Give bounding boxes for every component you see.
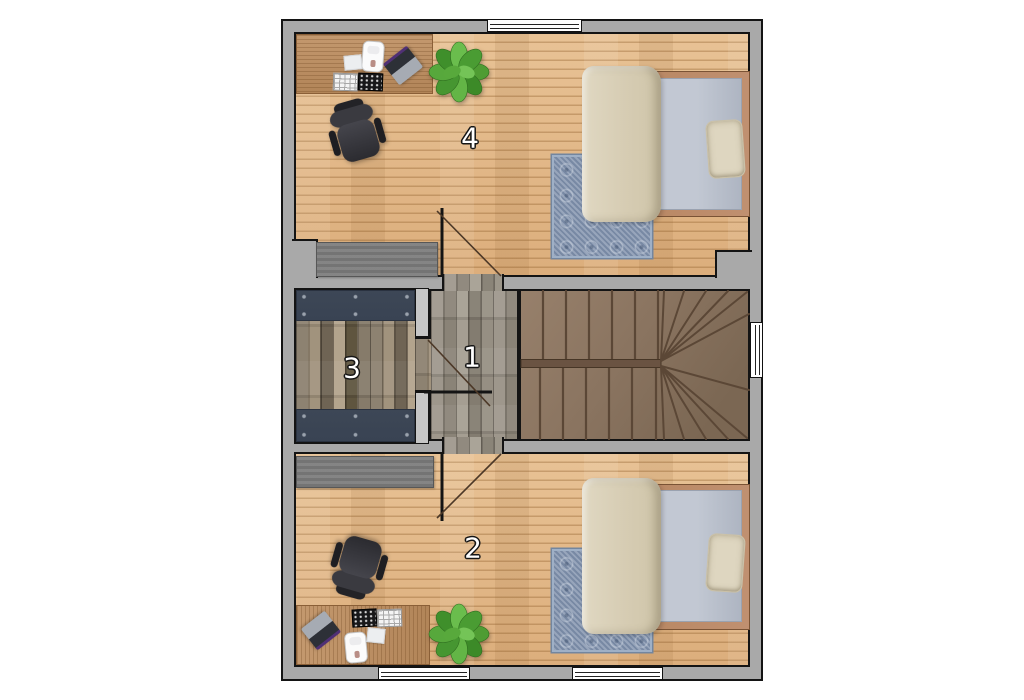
doorway-bedroom-top: [442, 274, 504, 291]
doorway-bedroom-bottom: [442, 437, 504, 454]
window-top: [487, 19, 582, 32]
room-label-bedroom-bottom: 2: [464, 532, 482, 565]
window-bottom-right: [572, 667, 663, 680]
notepad-icon-bottom: [366, 627, 385, 644]
room-label-hallway: 1: [463, 341, 481, 374]
wall-jamb-storage-upper: [415, 288, 429, 337]
dresser-bottom: [296, 456, 434, 488]
window-right: [750, 322, 763, 378]
console-device-icon-top: [361, 40, 385, 72]
wall-notch-top-room-right: [715, 250, 752, 278]
keypad-black-icon-top: [358, 73, 384, 92]
floor-plan: 4 1 3 2: [0, 0, 1024, 700]
wall-jamb-storage-lower: [415, 392, 429, 444]
doorway-storage: [415, 337, 431, 392]
bed-pillow-bottom: [705, 533, 746, 593]
console-device-icon-bottom: [344, 631, 369, 664]
window-bottom-left: [378, 667, 470, 680]
plant-icon-top: [425, 38, 493, 106]
room-label-storage: 3: [343, 352, 361, 385]
bed-pillow-top: [705, 119, 746, 179]
staircase: [519, 289, 750, 441]
storage-panel-top: [296, 290, 415, 321]
keypad-white-icon-bottom: [377, 609, 403, 628]
notepad-icon-top: [343, 54, 362, 71]
keypad-white-icon-top: [333, 73, 359, 92]
bed-blanket-top: [582, 66, 661, 222]
room-label-bedroom-top: 4: [461, 122, 479, 155]
wall-notch-top-room-left: [292, 239, 318, 278]
storage-panel-bottom: [296, 409, 415, 442]
dresser-top: [316, 242, 438, 277]
plant-icon-bottom: [425, 600, 493, 668]
keypad-black-icon-bottom: [352, 608, 378, 627]
bed-blanket-bottom: [582, 478, 661, 634]
